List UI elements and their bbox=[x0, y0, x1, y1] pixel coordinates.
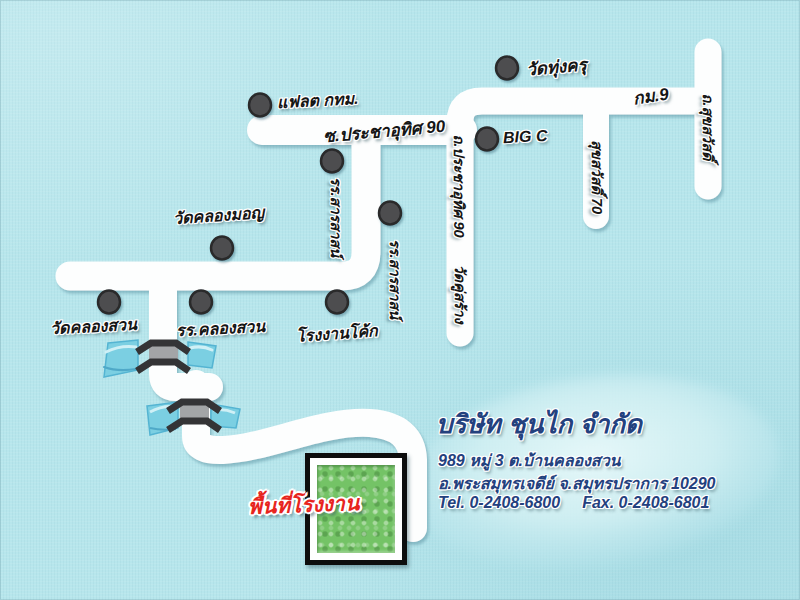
label-flat-bkk: แฟลต กทม. bbox=[276, 86, 359, 115]
dot-khlong-suan-school bbox=[190, 291, 212, 314]
company-tel: Tel. 0-2408-6800 bbox=[438, 494, 560, 511]
label-road-pracha-uthit-90: ถ.ประชาอุทิศ 90 bbox=[448, 134, 471, 237]
label-road-km9: กม.9 bbox=[631, 80, 670, 112]
label-factory-area: พื้นที่โรงงาน bbox=[247, 486, 359, 523]
dot-wat-khlong-mon bbox=[211, 237, 233, 260]
label-sarasas-school-2: รร.สารสาสน์ bbox=[384, 239, 407, 319]
dot-sarasas-school-1 bbox=[321, 150, 343, 173]
label-road-suksawat-70: สุขสวัสดิ์ 70 bbox=[586, 140, 609, 214]
dot-sarasas-school-2 bbox=[379, 202, 401, 225]
dot-big-c bbox=[476, 128, 498, 151]
dot-coke-factory bbox=[326, 291, 348, 314]
label-road-suksawat: ถ.สุขสวัสดิ์ bbox=[697, 94, 720, 161]
dot-wat-khlong-suan bbox=[98, 291, 120, 314]
company-fax: Fax. 0-2408-6801 bbox=[582, 494, 709, 511]
label-sarasas-school-1: รร.สารสาสน์ bbox=[325, 177, 348, 257]
label-wat-thung-khru: วัดทุ่งครุ bbox=[525, 50, 588, 82]
company-telfax: Tel. 0-2408-6800Fax. 0-2408-6801 bbox=[438, 494, 731, 512]
dot-flat-bkk bbox=[249, 94, 271, 117]
label-wat-khlong-suan: วัดคลองสวน bbox=[49, 312, 137, 342]
company-address-1: 989 หมู่ 3 ต.บ้านคลองสวน bbox=[438, 448, 621, 473]
company-name: บริษัท ชุนไก จำกัด bbox=[436, 403, 642, 444]
map-page: แฟลต กทม. วัดทุ่งครุ BIG C รร.สารสาสน์ ร… bbox=[0, 0, 800, 600]
label-khlong-suan-school: รร.คลองสวน bbox=[175, 314, 265, 344]
company-address-2: อ.พระสมุทรเจดีย์ จ.สมุทรปราการ 10290 bbox=[438, 471, 716, 496]
label-big-c: BIG C bbox=[503, 127, 548, 147]
dot-wat-thung-khru bbox=[496, 57, 518, 80]
label-wat-khu-sang: วัดคู่สร้าง bbox=[449, 264, 472, 323]
